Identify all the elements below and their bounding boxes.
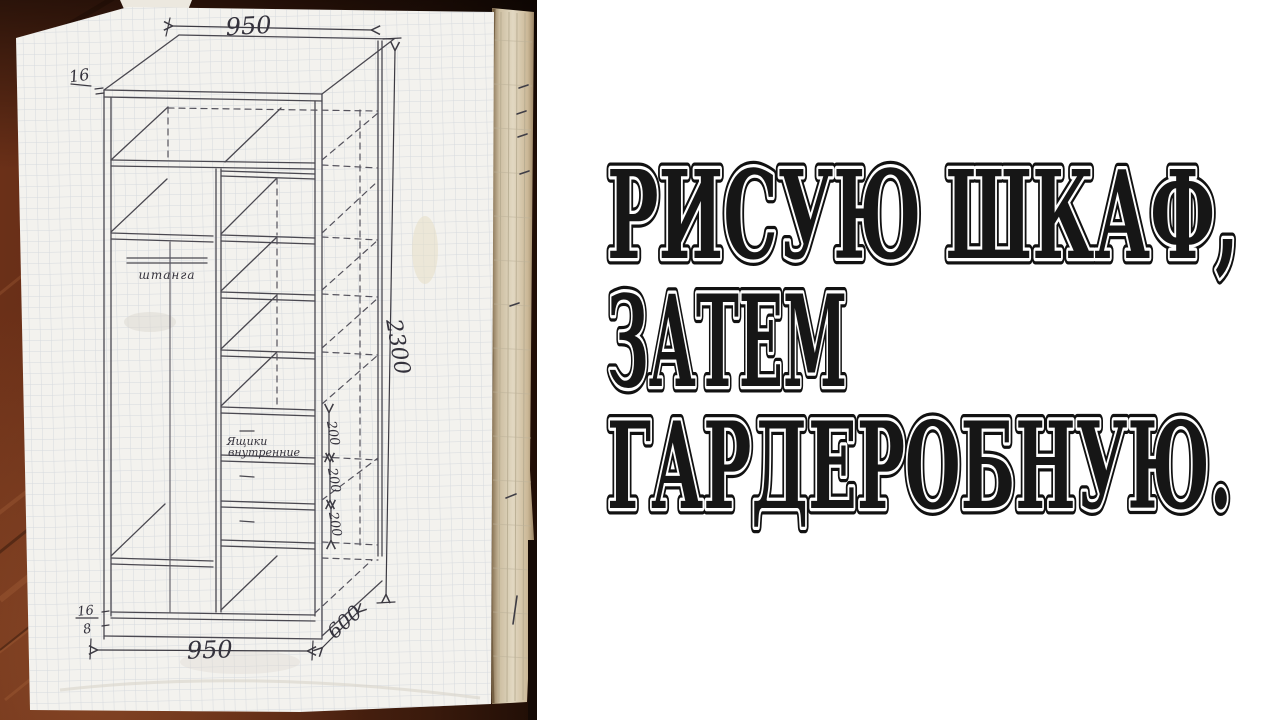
dim-bottom-width: 950 [186, 635, 233, 665]
title-line-3-text: ГАРДЕРОБНУЮ. [607, 396, 1232, 537]
title-line-1-text: РИСУЮ ШКАФ, [607, 143, 1239, 287]
title-line-2: ЗАТЕМ ЗАТЕМ [607, 268, 847, 416]
video-thumbnail: 950 16 2300 штанга Ящики внутренние 200 … [0, 0, 1280, 720]
dim-top-width: 950 [225, 11, 272, 41]
title-panel: РИСУЮ ШКАФ, РИСУЮ ШКАФ, ЗАТЕМ ЗАТЕМ ГАРД… [537, 0, 1280, 720]
title-overlay-svg: РИСУЮ ШКАФ, РИСУЮ ШКАФ, ЗАТЕМ ЗАТЕМ ГАРД… [537, 0, 1280, 720]
thickness-base-top: 16 [77, 603, 95, 620]
label-drawers-2: внутренние [228, 446, 301, 459]
title-line-2-text: ЗАТЕМ [607, 268, 847, 416]
title-line-1: РИСУЮ ШКАФ, РИСУЮ ШКАФ, [607, 143, 1239, 287]
curled-page-edge [490, 8, 537, 720]
thickness-top: 16 [68, 65, 91, 87]
sketch-photo: 950 16 2300 штанга Ящики внутренние 200 … [0, 0, 537, 720]
title-line-3: ГАРДЕРОБНУЮ. ГАРДЕРОБНУЮ. [607, 396, 1232, 537]
wardrobe-sketch-svg: 950 16 2300 штанга Ящики внутренние 200 … [0, 0, 537, 720]
label-rod: штанга [138, 268, 195, 282]
